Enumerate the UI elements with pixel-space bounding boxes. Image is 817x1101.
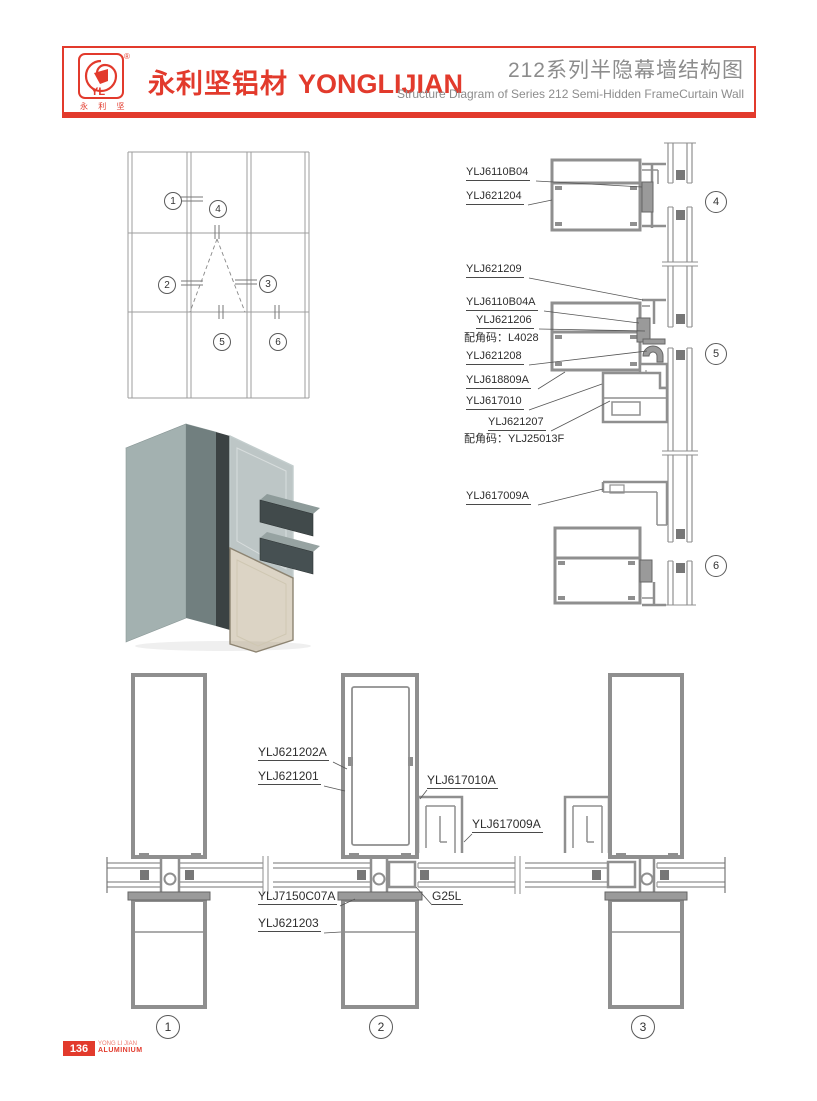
part-label-ylj621209: YLJ621209 [466, 263, 524, 278]
part-label-ylj6110b04: YLJ6110B04 [466, 166, 530, 181]
part-label-ylj618809a: YLJ618809A [466, 374, 531, 389]
part-label-ylj621203: YLJ621203 [258, 917, 321, 932]
part-label-ylj617010: YLJ617010 [466, 395, 524, 410]
page-number: 136 [63, 1041, 95, 1056]
callout-detail-3: 3 [631, 1015, 655, 1039]
part-label-corner-code-ylj25013f: 配角码：YLJ25013F [464, 433, 566, 447]
part-label-ylj621208: YLJ621208 [466, 350, 524, 365]
page-title-en: Structure Diagram of Series 212 Semi-Hid… [397, 87, 744, 101]
brand-logo-icon: YL ® 永 利 坚 [76, 51, 140, 111]
catalog-page: YL ® 永 利 坚 永利坚铝材YONGLIJIAN 212系列半隐幕墙结构图 … [0, 0, 817, 1101]
logo-characters: 永 利 坚 [80, 101, 128, 111]
elevation-drawing [105, 140, 325, 410]
page-title: 212系列半隐幕墙结构图 Structure Diagram of Series… [397, 54, 744, 101]
part-label-ylj617009a-bottom: YLJ617009A [472, 818, 543, 833]
part-label-ylj621204: YLJ621204 [466, 190, 524, 205]
callout-detail-2: 2 [369, 1015, 393, 1039]
footer-brand-line2: ALUMINIUM [98, 1047, 143, 1054]
part-label-ylj617009a: YLJ617009A [466, 490, 531, 505]
callout-detail-1: 1 [156, 1015, 180, 1039]
page-title-cn: 212系列半隐幕墙结构图 [397, 54, 744, 84]
part-label-ylj6110b04a: YLJ6110B04A [466, 296, 538, 311]
part-label-g25l: G25L [432, 890, 463, 905]
part-label-ylj621207: YLJ621207 [488, 416, 546, 431]
callout-elevation-4: 4 [209, 200, 227, 218]
registered-mark: ® [124, 52, 130, 61]
callout-elevation-2: 2 [158, 276, 176, 294]
part-label-corner-code-l4028: 配角码：L4028 [464, 332, 541, 346]
callout-elevation-6: 6 [269, 333, 287, 351]
callout-elevation-1: 1 [164, 192, 182, 210]
logo-monogram: YL [91, 86, 105, 98]
part-label-ylj621206: YLJ621206 [476, 314, 534, 329]
callout-section-4: 4 [705, 191, 727, 213]
footer: 136 YONG LI JIAN ALUMINIUM [63, 1041, 143, 1056]
bottom-section-drawing [95, 660, 755, 1040]
part-label-ylj7150c07a: YLJ7150C07A [258, 890, 337, 905]
callout-elevation-5: 5 [213, 333, 231, 351]
brand-logo: YL ® 永 利 坚 [76, 51, 140, 111]
footer-brand: YONG LI JIAN ALUMINIUM [98, 1041, 143, 1054]
brand-name-cn: 永利坚铝材 [148, 69, 288, 99]
render-3d-image [108, 408, 338, 653]
header: YL ® 永 利 坚 永利坚铝材YONGLIJIAN 212系列半隐幕墙结构图 … [62, 46, 756, 118]
part-label-ylj621201: YLJ621201 [258, 770, 321, 785]
part-label-ylj621202a: YLJ621202A [258, 746, 329, 761]
callout-section-5: 5 [705, 343, 727, 365]
part-label-ylj617010a: YLJ617010A [427, 774, 498, 789]
callout-section-6: 6 [705, 555, 727, 577]
callout-elevation-3: 3 [259, 275, 277, 293]
